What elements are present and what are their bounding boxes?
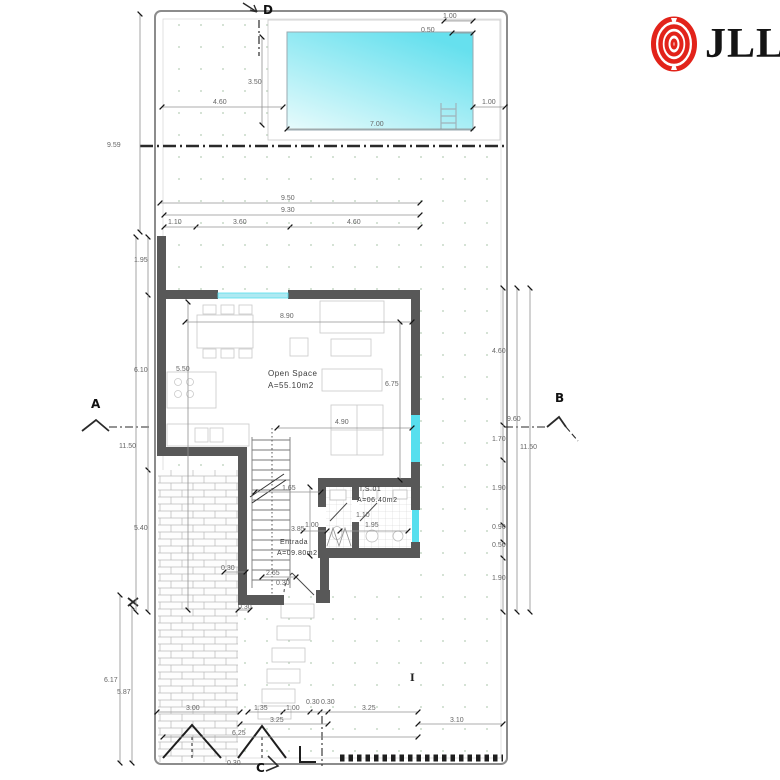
dim-label: 5.40 xyxy=(134,525,148,532)
dining-table xyxy=(197,315,253,348)
section-marker-b: B xyxy=(555,392,564,404)
armchair xyxy=(290,338,308,356)
room-label-entrada: Entrada xyxy=(280,539,308,546)
dim-label: 6.17 xyxy=(104,677,118,684)
dim-label: 3.60 xyxy=(233,219,247,226)
x-mark xyxy=(128,598,138,606)
dim-label: 3.50 xyxy=(248,79,262,86)
section-marker-c: C xyxy=(256,762,265,774)
jll-logo-text: JLL xyxy=(705,23,780,65)
jll-rings-icon xyxy=(650,16,698,72)
dim-label: 6.75 xyxy=(385,381,399,388)
dim-label: 9.30 xyxy=(281,207,295,214)
dim-label: 4.60 xyxy=(347,219,361,226)
dim-label: 1.90 xyxy=(492,485,506,492)
dim-label: 0.30 xyxy=(221,565,235,572)
dim-label: 5.50 xyxy=(176,366,190,373)
dim-label: 8.90 xyxy=(280,313,294,320)
dim-label: 3.00 xyxy=(186,705,200,712)
sink-icon xyxy=(330,490,346,500)
dim-label: 1.95 xyxy=(365,522,379,529)
dim-label: 9.50 xyxy=(281,195,295,202)
floor-plan-drawing xyxy=(0,0,780,780)
toilet-icon xyxy=(366,530,378,542)
dim-label: 1.10 xyxy=(356,512,370,519)
brick-terrace xyxy=(158,470,238,762)
dim-label: 2.65 xyxy=(266,570,280,577)
jll-logo: JLL xyxy=(650,16,780,72)
dim-label: 4.60 xyxy=(492,348,506,355)
dim-label: 1.70 xyxy=(492,436,506,443)
dim-label: 9.59 xyxy=(107,142,121,149)
dim-label: 3.85 xyxy=(291,526,305,533)
dim-label: 1.00 xyxy=(443,13,457,20)
room-area-open-space: A=55.10m2 xyxy=(268,382,314,390)
dim-label: 3.25 xyxy=(270,717,284,724)
sideboard xyxy=(320,301,384,333)
dim-label: 6.10 xyxy=(134,367,148,374)
room-label-open-space: Open Space xyxy=(268,370,317,378)
dim-label: 1.00 xyxy=(305,522,319,529)
dim-label: 0.50 xyxy=(492,542,506,549)
dim-label: 11.50 xyxy=(520,444,537,451)
section-marker-a: A xyxy=(91,398,100,410)
dim-label: 0.30 xyxy=(227,760,241,767)
section-marker-b-arrow xyxy=(547,417,566,427)
dim-label: 0.30 xyxy=(306,699,320,706)
room-label-is01: I.S.01 xyxy=(360,486,381,493)
beam-symbol: I xyxy=(410,674,415,684)
dim-label: 3.10 xyxy=(450,717,464,724)
dim-label: 1.00 xyxy=(286,705,300,712)
dim-label: 0.30 xyxy=(321,699,335,706)
dim-label: 0.50 xyxy=(421,27,435,34)
dim-label: 0.30 xyxy=(238,604,252,611)
floor-plan-canvas: D A B C I 1.00 0.50 3.50 4.60 1.00 7.00 … xyxy=(0,0,780,780)
dim-label: 3.25 xyxy=(362,705,376,712)
dim-label: 11.50 xyxy=(119,443,136,450)
section-marker-d: D xyxy=(263,4,273,16)
pool xyxy=(268,20,500,140)
room-area-entrada: A=09.80m2 xyxy=(277,550,318,557)
shower-drain-icon xyxy=(393,531,403,541)
dim-label: 1.35 xyxy=(254,705,268,712)
dim-label: 1.95 xyxy=(134,257,148,264)
dim-label: 4.60 xyxy=(213,99,227,106)
section-marker-a-arrow xyxy=(82,420,109,431)
dim-label: 1.10 xyxy=(168,219,182,226)
kitchen-counter xyxy=(167,372,216,408)
dim-label: 5.87 xyxy=(117,689,131,696)
dim-label: 7.00 xyxy=(370,121,384,128)
dim-label: 6.25 xyxy=(232,730,246,737)
dim-label: 0.30 xyxy=(276,580,290,587)
dim-label: 1.00 xyxy=(482,99,496,106)
dim-label: 4.90 xyxy=(335,419,349,426)
room-area-is01: A=06.40m2 xyxy=(357,497,398,504)
dim-label: 0.90 xyxy=(492,524,506,531)
dim-label: 1.65 xyxy=(282,485,296,492)
dim-label: 9.60 xyxy=(507,416,521,423)
dim-label: 1.90 xyxy=(492,575,506,582)
